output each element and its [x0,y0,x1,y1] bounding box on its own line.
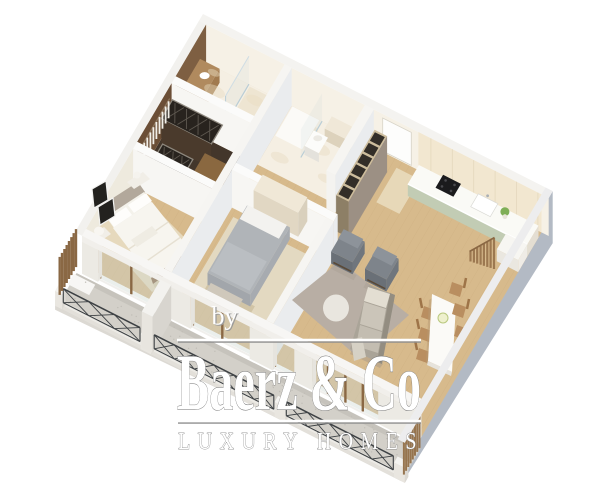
svg-text:by: by [212,302,238,331]
svg-text:Baerz & Co: Baerz & Co [177,340,421,428]
svg-text:LUXURY HOMES: LUXURY HOMES [178,429,424,455]
